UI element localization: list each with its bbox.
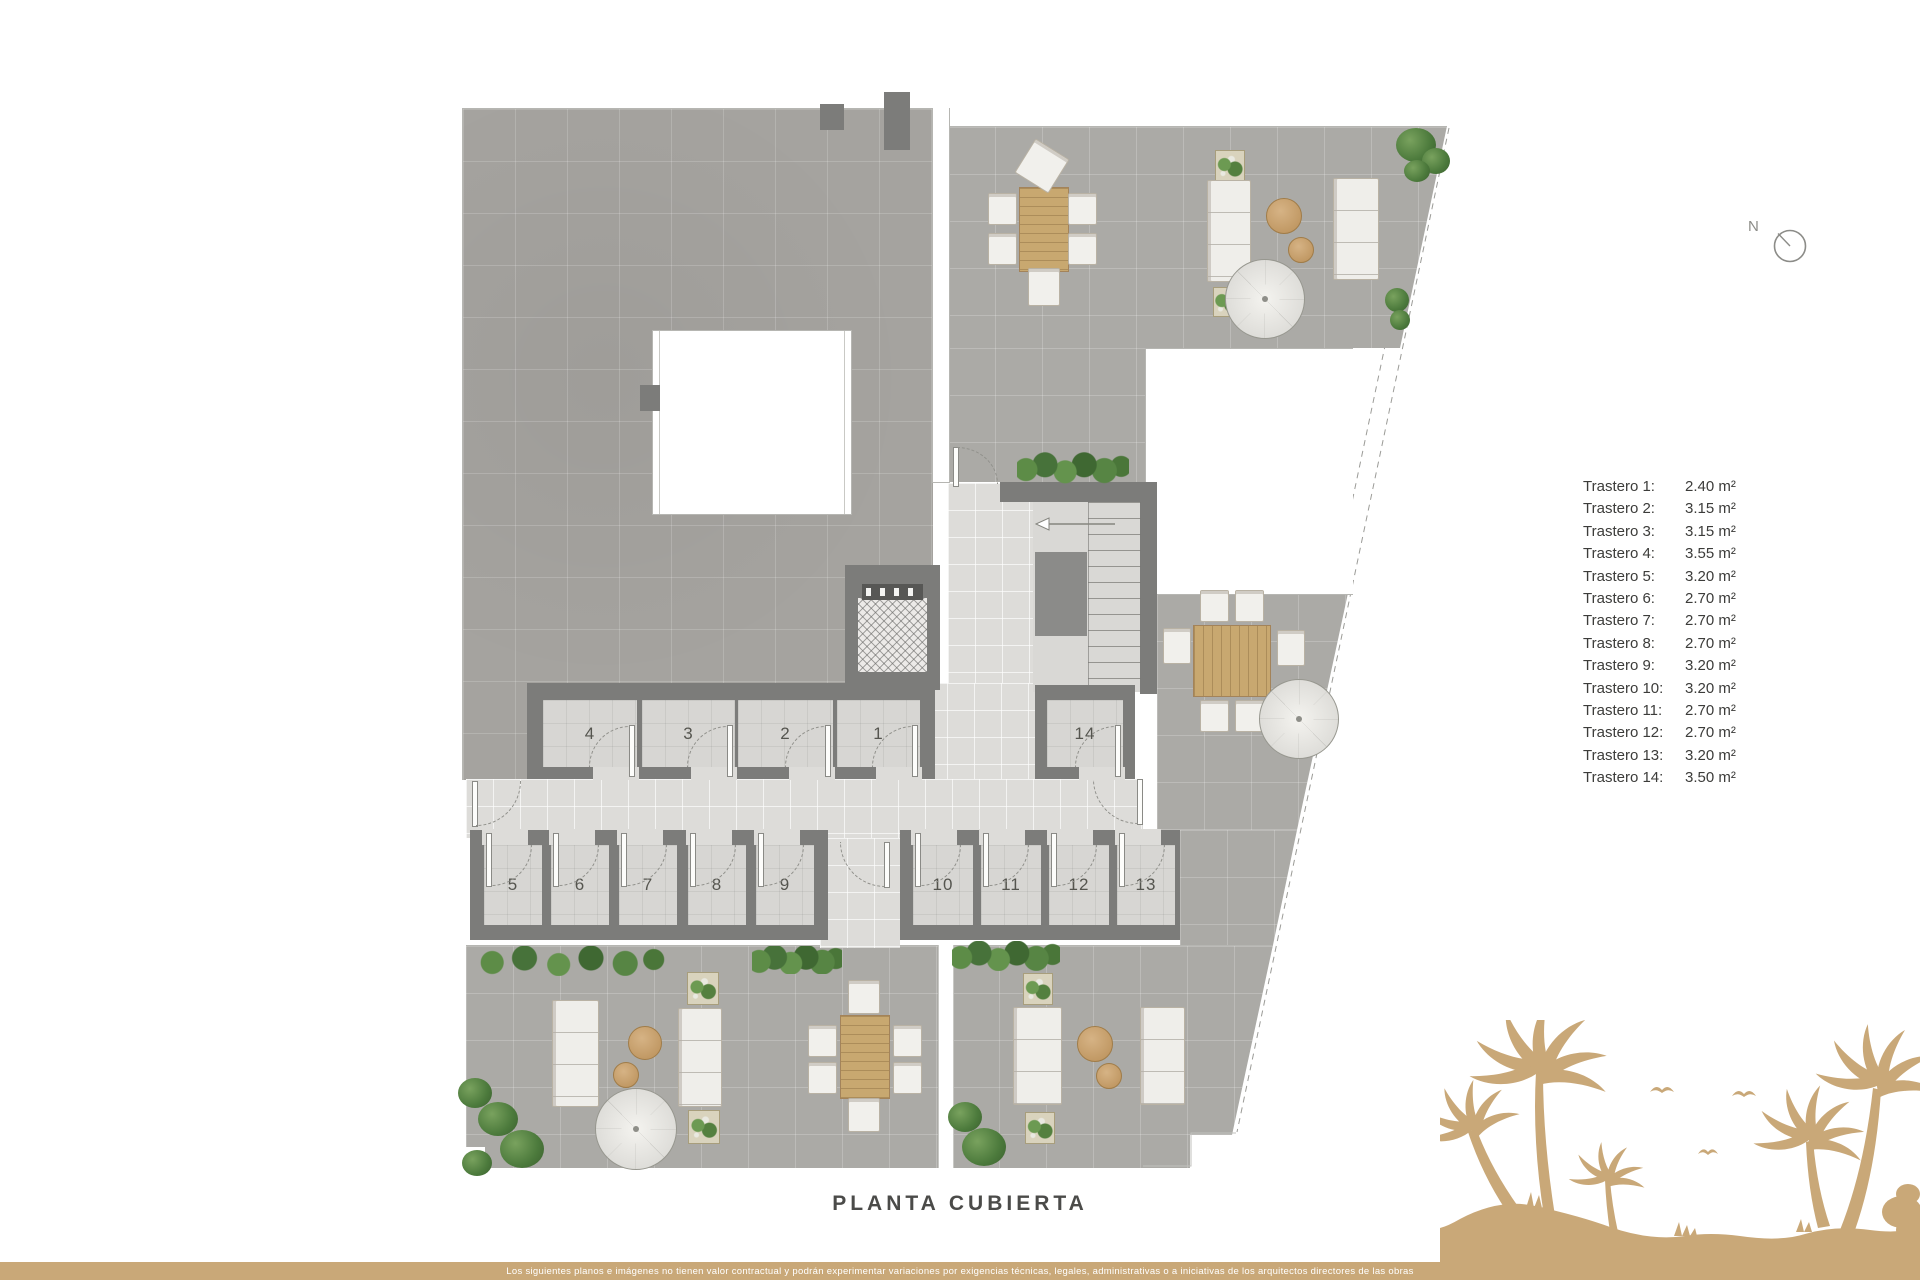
legend-row: Trastero 3:3.15 m² [1583,521,1813,543]
legend-row: Trastero 6:2.70 m² [1583,588,1813,610]
legend-label: Trastero 9: [1583,655,1685,677]
terrace-step-outline [1143,1133,1236,1166]
legend-row: Trastero 12:2.70 m² [1583,722,1813,744]
legend-label: Trastero 8: [1583,633,1685,655]
legend-label: Trastero 10: [1583,678,1685,700]
legend-row: Trastero 11:2.70 m² [1583,700,1813,722]
legend-label: Trastero 7: [1583,610,1685,632]
legend-row: Trastero 1:2.40 m² [1583,476,1813,498]
palm-beach-silhouette [1440,1020,1920,1265]
legend-value: 2.70 m² [1685,700,1736,722]
legend-value: 3.50 m² [1685,767,1736,789]
legend-value: 2.70 m² [1685,722,1736,744]
legend-label: Trastero 11: [1583,700,1685,722]
stair-direction-arrowhead [1036,518,1049,530]
legend-value: 3.55 m² [1685,543,1736,565]
footer-disclaimer-bar: Los siguientes planos e imágenes no tien… [0,1262,1920,1280]
north-label: N [1748,218,1759,235]
legend-row: Trastero 10:3.20 m² [1583,678,1813,700]
legend-value: 2.70 m² [1685,588,1736,610]
footer-disclaimer-text: Los siguientes planos e imágenes no tien… [506,1266,1413,1277]
legend-label: Trastero 14: [1583,767,1685,789]
legend-label: Trastero 6: [1583,588,1685,610]
legend-label: Trastero 13: [1583,745,1685,767]
legend-value: 3.20 m² [1685,678,1736,700]
page: { "plan": { "title": "PLANTA CUBIERTA", … [0,0,1920,1280]
legend-row: Trastero 14:3.50 m² [1583,767,1813,789]
north-compass-icon [1775,231,1806,262]
legend-label: Trastero 3: [1583,521,1685,543]
legend-row: Trastero 7:2.70 m² [1583,610,1813,632]
legend-label: Trastero 12: [1583,722,1685,744]
legend-row: Trastero 8:2.70 m² [1583,633,1813,655]
legend-label: Trastero 2: [1583,498,1685,520]
legend-label: Trastero 5: [1583,566,1685,588]
legend-row: Trastero 2:3.15 m² [1583,498,1813,520]
legend-value: 2.40 m² [1685,476,1736,498]
legend-row: Trastero 9:3.20 m² [1583,655,1813,677]
legend-row: Trastero 13:3.20 m² [1583,745,1813,767]
legend-value: 3.15 m² [1685,498,1736,520]
legend-row: Trastero 4:3.55 m² [1583,543,1813,565]
legend-label: Trastero 4: [1583,543,1685,565]
legend-label: Trastero 1: [1583,476,1685,498]
legend-value: 3.20 m² [1685,566,1736,588]
legend-value: 3.20 m² [1685,745,1736,767]
legend-value: 2.70 m² [1685,633,1736,655]
legend-value: 3.20 m² [1685,655,1736,677]
legend-row: Trastero 5:3.20 m² [1583,566,1813,588]
legend-value: 2.70 m² [1685,610,1736,632]
storeroom-area-legend: Trastero 1:2.40 m²Trastero 2:3.15 m²Tras… [1583,476,1813,790]
page-title: PLANTA CUBIERTA [660,1192,1260,1216]
legend-value: 3.15 m² [1685,521,1736,543]
